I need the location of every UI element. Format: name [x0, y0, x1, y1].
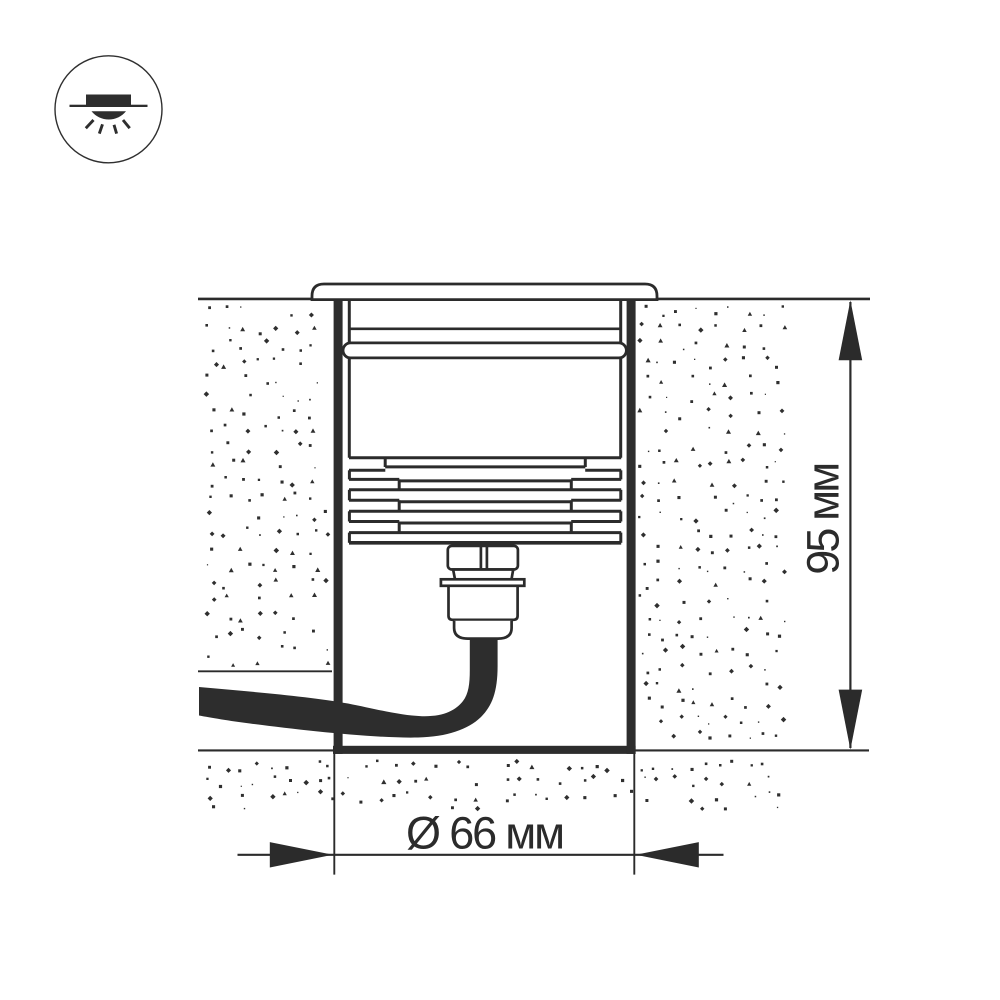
svg-text:Ø 66 мм: Ø 66 мм: [406, 807, 565, 858]
svg-text:95 мм: 95 мм: [798, 462, 849, 575]
